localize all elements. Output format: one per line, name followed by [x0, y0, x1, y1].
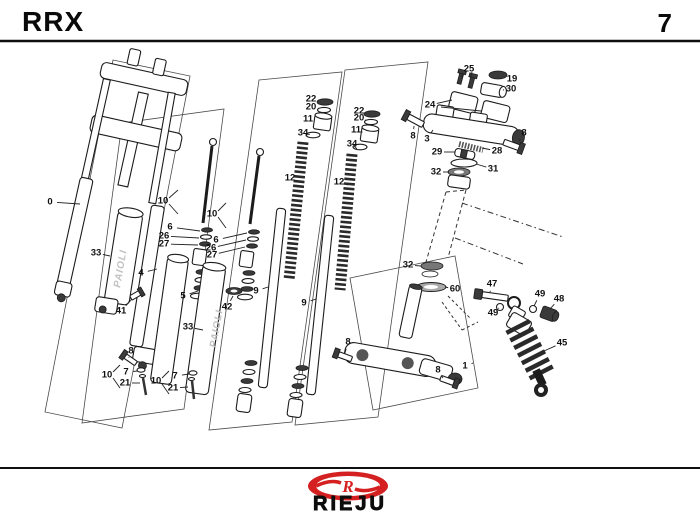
part-callout-45: 45 [557, 338, 568, 349]
part-callout-41: 41 [116, 306, 127, 317]
part-callout-11: 11 [351, 125, 362, 136]
callout-leader-60 [445, 287, 448, 288]
part-callout-12: 12 [285, 173, 296, 184]
callout-leader-21 [180, 387, 188, 388]
callout-leader-6 [223, 233, 247, 238]
part-callout-10: 10 [207, 209, 218, 220]
callout-leader-12 [297, 180, 298, 181]
part-callout-7: 7 [172, 371, 177, 382]
part-callout-49: 49 [488, 308, 499, 319]
callout-leader-26 [218, 240, 246, 246]
part-callout-8: 8 [345, 337, 350, 348]
part-callout-7: 7 [123, 367, 128, 378]
part-callout-47: 47 [487, 279, 498, 290]
part-callout-8: 8 [410, 131, 415, 142]
part-callout-30: 30 [506, 84, 517, 95]
part-callout-1: 1 [462, 361, 468, 372]
part-callout-33: 33 [91, 248, 102, 259]
part-callout-21: 21 [168, 383, 179, 394]
callout-leader-9 [311, 299, 316, 301]
part-callout-4: 4 [138, 268, 144, 279]
callout-leader-9 [263, 287, 268, 289]
part-callout-9: 9 [301, 298, 306, 309]
part-callout-27: 27 [207, 250, 218, 261]
part-callout-9: 9 [253, 286, 258, 297]
part-callout-29: 29 [432, 147, 443, 158]
part-callout-20: 20 [306, 102, 317, 113]
part-callout-10: 10 [151, 376, 162, 387]
callout-leader-27 [171, 244, 198, 245]
part-callout-25: 25 [464, 64, 475, 75]
part-callout-48: 48 [554, 294, 565, 305]
part-callout-34: 34 [347, 139, 358, 150]
part-callout-21: 21 [120, 378, 131, 389]
lower-triple-clamp-drawing [332, 283, 462, 389]
parts-catalog-page: RRX 7 [0, 0, 700, 514]
callout-leader-26 [171, 236, 199, 238]
part-callout-34: 34 [298, 128, 309, 139]
part-callout-12: 12 [334, 177, 345, 188]
part-callout-10: 10 [102, 370, 113, 381]
exploded-parts-diagram: PAIOLI PAIOLI [0, 0, 700, 514]
part-callout-60: 60 [450, 284, 461, 295]
part-callout-28: 28 [492, 146, 503, 157]
part-callout-0: 0 [47, 197, 52, 208]
part-callout-33: 33 [183, 322, 194, 333]
rieju-logo: R RIEJU [308, 472, 388, 514]
part-callout-3: 3 [424, 134, 429, 145]
part-callout-8: 8 [521, 128, 526, 139]
part-callout-10: 10 [158, 196, 169, 207]
callout-leader-1 [472, 363, 473, 364]
part-callout-32: 32 [403, 260, 414, 271]
part-callout-8: 8 [128, 346, 133, 357]
part-callout-5: 5 [180, 291, 186, 302]
steering-clamp-parts-drawing [401, 69, 527, 311]
part-callout-11: 11 [303, 114, 314, 125]
part-callout-20: 20 [354, 113, 365, 124]
callout-leader-49 [534, 300, 537, 306]
part-callout-31: 31 [488, 164, 499, 175]
part-callout-32: 32 [431, 167, 442, 178]
part-callout-27: 27 [159, 239, 170, 250]
part-callout-42: 42 [222, 302, 233, 313]
callout-leader-42 [230, 296, 233, 301]
callout-leader-45 [544, 346, 556, 351]
brand-wordmark: RIEJU [313, 493, 387, 514]
part-callout-24: 24 [425, 100, 436, 111]
callout-leader-6 [177, 228, 200, 231]
part-callout-49: 49 [535, 289, 546, 300]
part-callout-8: 8 [435, 365, 440, 376]
callout-leader-48 [550, 304, 554, 309]
callout-leader-31 [476, 164, 486, 167]
callout-leader-49 [498, 308, 499, 309]
